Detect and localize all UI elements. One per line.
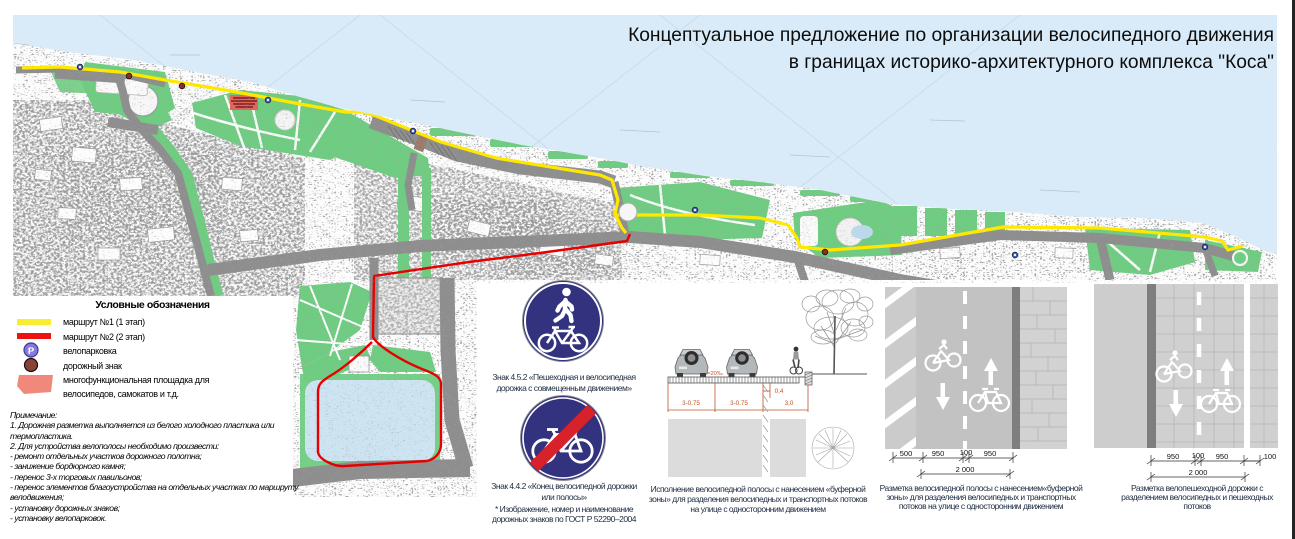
svg-text:P: P	[28, 346, 35, 357]
svg-text:950: 950	[1167, 452, 1180, 461]
svg-text:950: 950	[932, 449, 945, 458]
svg-text:0,4: 0,4	[775, 388, 784, 395]
svg-text:950: 950	[984, 449, 997, 458]
svg-text:3-0,75: 3-0,75	[730, 400, 748, 407]
svg-text:3-0,75: 3-0,75	[682, 400, 700, 407]
svg-text:100: 100	[1192, 452, 1205, 460]
svg-text:2 000: 2 000	[956, 465, 975, 474]
svg-text:≈20‰: ≈20‰	[707, 371, 723, 377]
svg-text:100: 100	[960, 449, 973, 457]
svg-text:500: 500	[900, 449, 913, 458]
svg-text:100: 100	[1264, 452, 1277, 461]
svg-text:2 000: 2 000	[1189, 468, 1208, 477]
svg-text:950: 950	[1216, 452, 1229, 461]
svg-text:3,0: 3,0	[785, 400, 794, 407]
